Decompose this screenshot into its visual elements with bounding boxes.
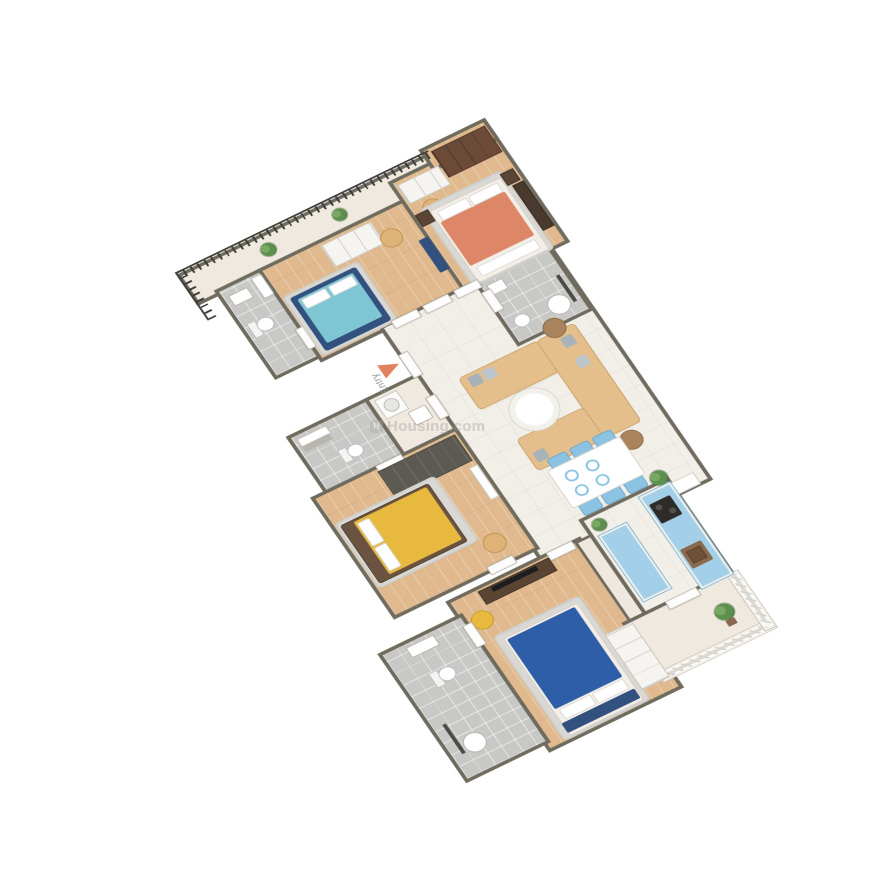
watermark-logo-icon: H bbox=[370, 420, 383, 433]
watermark-text: Housing.com bbox=[387, 418, 485, 435]
isometric-floor-plan: Entry bbox=[119, 104, 850, 797]
watermark: H Housing.com bbox=[370, 418, 485, 435]
floor-plan-canvas: Entry bbox=[0, 0, 870, 870]
